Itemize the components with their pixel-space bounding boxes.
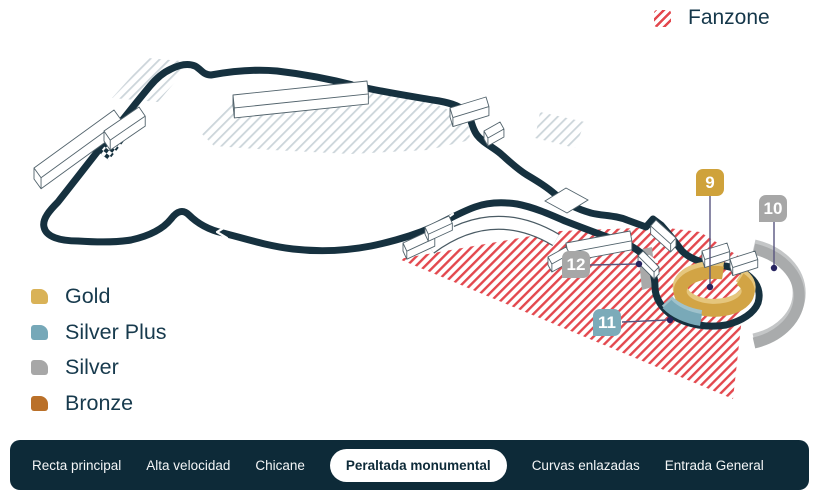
tab-entrada-general[interactable]: Entrada General <box>665 458 764 473</box>
tab-curvas-enlazadas[interactable]: Curvas enlazadas <box>532 458 640 473</box>
legend-item-silver-plus: Silver Plus <box>31 315 167 351</box>
tab-peraltada-monumental[interactable]: Peraltada monumental <box>330 449 507 482</box>
bronze-swatch-icon <box>31 396 48 411</box>
legend-item-silver: Silver <box>31 350 167 386</box>
legend-label: Gold <box>65 284 110 309</box>
legend-item-bronze: Bronze <box>31 386 167 422</box>
fanzone-hatch-icon <box>654 10 671 27</box>
fanzone-label: Fanzone <box>688 6 770 30</box>
gold-swatch-icon <box>31 289 48 304</box>
silver-plus-swatch-icon <box>31 325 48 340</box>
tab-chicane[interactable]: Chicane <box>255 458 305 473</box>
legend-label: Silver <box>65 355 119 380</box>
legend-item-gold: Gold <box>31 279 167 315</box>
tab-recta-principal[interactable]: Recta principal <box>32 458 121 473</box>
zone-marker-10: 10 <box>759 195 787 222</box>
zone-marker-11: 11 <box>593 309 621 336</box>
legend-label: Silver Plus <box>65 320 167 345</box>
circuit-map-page: 9 10 11 12 Fanzone Gold Silver Plus Silv… <box>0 0 819 504</box>
zone-marker-9: 9 <box>696 169 724 196</box>
zone-marker-12: 12 <box>562 251 590 278</box>
circuit-map <box>0 0 819 504</box>
fanzone-legend: Fanzone <box>654 6 770 30</box>
ticket-legend: Gold Silver Plus Silver Bronze <box>31 279 167 421</box>
section-tab-bar: Recta principal Alta velocidad Chicane P… <box>10 440 809 490</box>
silver-swatch-icon <box>31 360 48 375</box>
legend-label: Bronze <box>65 391 133 416</box>
tab-alta-velocidad[interactable]: Alta velocidad <box>146 458 230 473</box>
